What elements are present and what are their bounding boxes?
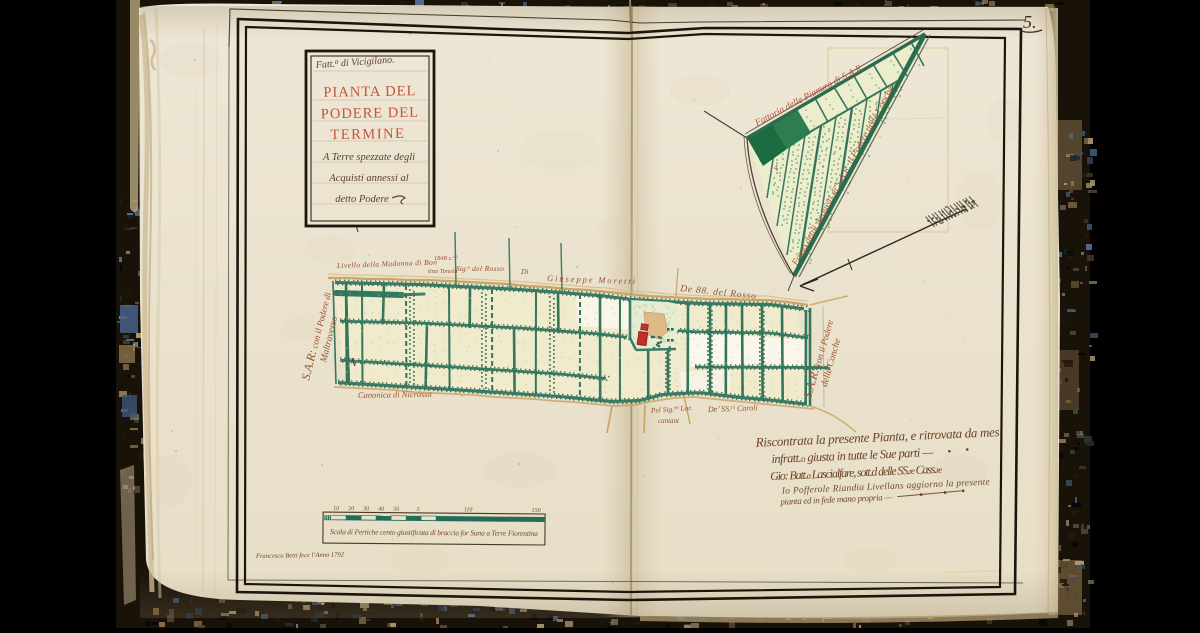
svg-text:5.: 5. xyxy=(1023,12,1037,32)
svg-text:Di: Di xyxy=(520,267,529,276)
svg-text:5: 5 xyxy=(417,507,420,513)
svg-text:TERMINE: TERMINE xyxy=(330,126,405,143)
svg-text:PIANTA DEL: PIANTA DEL xyxy=(323,83,416,101)
svg-text:10: 10 xyxy=(333,506,339,512)
svg-text:Scala di Pertiche cento giusti: Scala di Pertiche cento giustificata di … xyxy=(330,527,538,538)
svg-text:50: 50 xyxy=(393,507,399,513)
svg-text:Acquisti annessi al: Acquisti annessi al xyxy=(328,173,408,184)
svg-text:PODERE DEL: PODERE DEL xyxy=(321,105,419,123)
svg-text:150: 150 xyxy=(532,508,541,514)
svg-text:A Terre spezzate degli: A Terre spezzate degli xyxy=(322,152,415,163)
svg-text:4: 4 xyxy=(774,163,778,172)
svg-text:110: 110 xyxy=(464,507,473,513)
svg-text:tina Tonelli: tina Tonelli xyxy=(428,268,458,275)
svg-text:40: 40 xyxy=(378,506,384,513)
svg-text:detto Podere: detto Podere xyxy=(335,194,389,205)
svg-text:Canonica di Nicrossa: Canonica di Nicrossa xyxy=(358,389,432,400)
svg-text:cantant: cantant xyxy=(658,417,680,425)
svg-text:30: 30 xyxy=(362,506,369,512)
svg-text:20: 20 xyxy=(348,506,354,512)
svg-text:Sig.e del Rosso: Sig.e del Rosso xyxy=(456,264,504,273)
